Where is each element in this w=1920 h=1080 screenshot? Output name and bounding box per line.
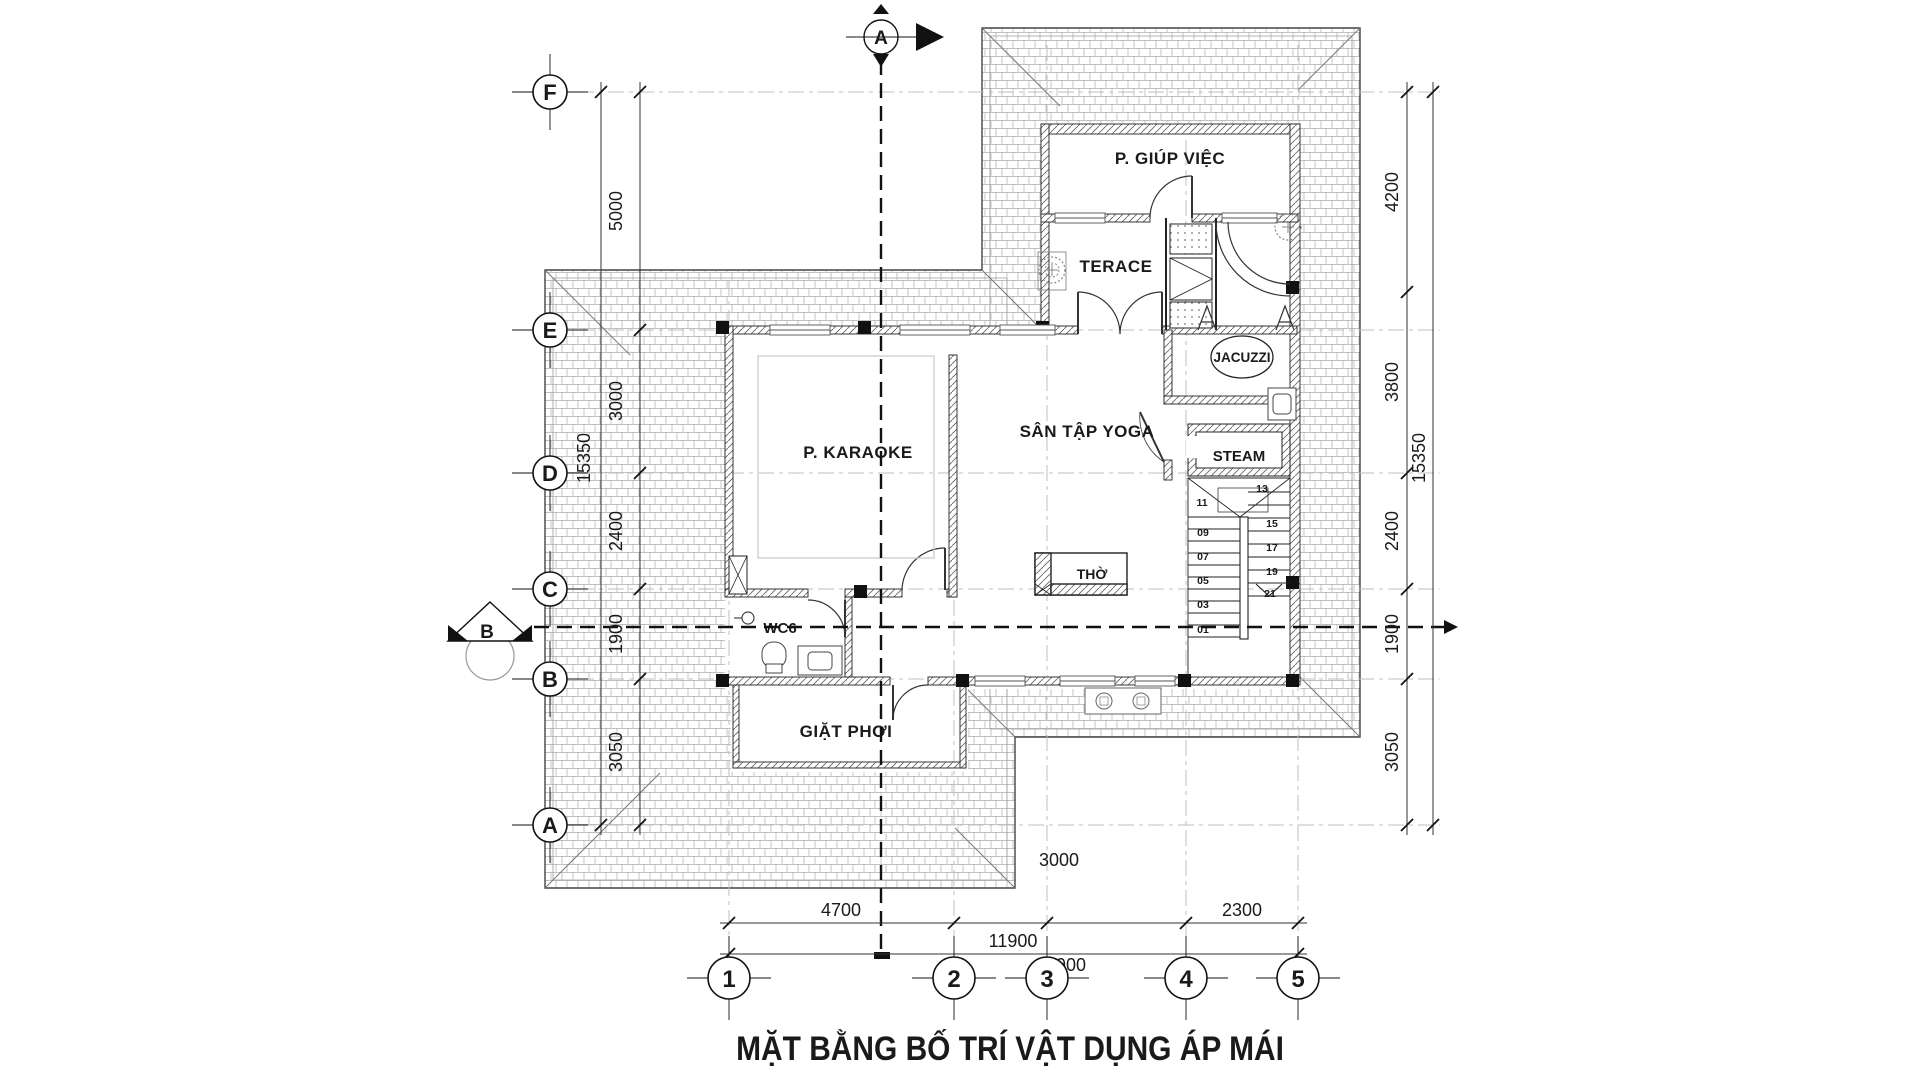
window bbox=[1000, 325, 1055, 335]
dim-label: 1900 bbox=[606, 614, 626, 654]
dim-label: 3800 bbox=[1382, 362, 1402, 402]
room-label-giat-phoi: GIẶT PHƠI bbox=[800, 722, 893, 741]
dim-label: 2300 bbox=[1222, 900, 1262, 920]
grid-label-row: F bbox=[543, 80, 556, 105]
grid-label-col: 4 bbox=[1179, 966, 1193, 993]
grid-label-col: 1 bbox=[722, 966, 735, 993]
room-label-wc: WC6 bbox=[763, 620, 796, 637]
dim-label: 4200 bbox=[1382, 172, 1402, 212]
stair-step-number: 09 bbox=[1197, 527, 1209, 539]
toilet bbox=[762, 642, 786, 673]
dim-label-total: 15350 bbox=[1409, 433, 1429, 483]
window bbox=[1060, 676, 1115, 686]
room-label-steam: STEAM bbox=[1213, 448, 1266, 465]
stair-step-number: 11 bbox=[1196, 497, 1207, 509]
grid-label-row: D bbox=[542, 461, 558, 486]
plan-drawing: 01 03 05 07 09 11 13 15 17 19 21 P. GIÚP… bbox=[0, 0, 1920, 1080]
section-arrow-icon bbox=[916, 23, 944, 51]
shaft-box bbox=[729, 556, 747, 594]
stair-step-number: 19 bbox=[1266, 566, 1278, 578]
window bbox=[1222, 213, 1277, 223]
section-label-b: B bbox=[480, 622, 494, 643]
room-label-giup-viec: P. GIÚP VIỆC bbox=[1115, 149, 1225, 168]
outdoor-sink-bench bbox=[1085, 688, 1161, 714]
dim-label-total: 15350 bbox=[574, 433, 594, 483]
dim-label: 3050 bbox=[606, 732, 626, 772]
window bbox=[975, 676, 1025, 686]
wardrobe-cabinets bbox=[1170, 224, 1212, 328]
stair-step-number: 21 bbox=[1264, 588, 1276, 600]
stair-step-number: 03 bbox=[1197, 599, 1209, 611]
grid-label-row: B bbox=[542, 667, 558, 692]
drawing-title: MẶT BẰNG BỐ TRÍ VẬT DỤNG ÁP MÁI bbox=[736, 1029, 1284, 1067]
grid-label-row: A bbox=[542, 813, 558, 838]
window bbox=[1135, 676, 1175, 686]
window bbox=[1055, 213, 1105, 223]
window bbox=[770, 325, 830, 335]
dim-label: 1900 bbox=[1382, 614, 1402, 654]
floor-plan-sheet: 01 03 05 07 09 11 13 15 17 19 21 P. GIÚP… bbox=[0, 0, 1920, 1080]
dim-label: 3050 bbox=[1382, 732, 1402, 772]
grid-label-row: C bbox=[542, 577, 558, 602]
washbasin bbox=[1268, 388, 1296, 420]
vanity-sink bbox=[798, 646, 842, 675]
grid-label-row: E bbox=[543, 318, 558, 343]
dim-label: 2400 bbox=[606, 511, 626, 551]
stair-step-number: 17 bbox=[1266, 542, 1278, 554]
dim-label: 3000 bbox=[1039, 850, 1079, 870]
dim-label: 5000 bbox=[606, 191, 626, 231]
grid-label-col: 5 bbox=[1291, 966, 1304, 993]
room-label-yoga: SÂN TẬP YOGA bbox=[1020, 422, 1155, 441]
room-label-tho: THỜ bbox=[1077, 565, 1108, 582]
dim-label: 3000 bbox=[606, 381, 626, 421]
stair-step-number: 05 bbox=[1197, 575, 1209, 587]
grid-label-col: 3 bbox=[1040, 966, 1053, 993]
section-arrow-icon bbox=[1444, 620, 1458, 634]
window bbox=[900, 325, 970, 335]
room-label-terace: TERACE bbox=[1080, 257, 1153, 276]
room-label-jacuzzi: JACUZZI bbox=[1214, 350, 1271, 365]
dim-label-total: 11900 bbox=[989, 931, 1038, 951]
grid-label-col: 2 bbox=[947, 966, 960, 993]
stair-step-number: 15 bbox=[1266, 518, 1278, 530]
section-label-a: A bbox=[874, 28, 888, 49]
stair-step-number: 07 bbox=[1197, 551, 1209, 563]
dim-label: 2400 bbox=[1382, 511, 1402, 551]
dim-label: 4700 bbox=[821, 900, 861, 920]
room-label-karaoke: P. KARAOKE bbox=[803, 443, 913, 462]
stair-step-number: 13 bbox=[1256, 483, 1268, 495]
